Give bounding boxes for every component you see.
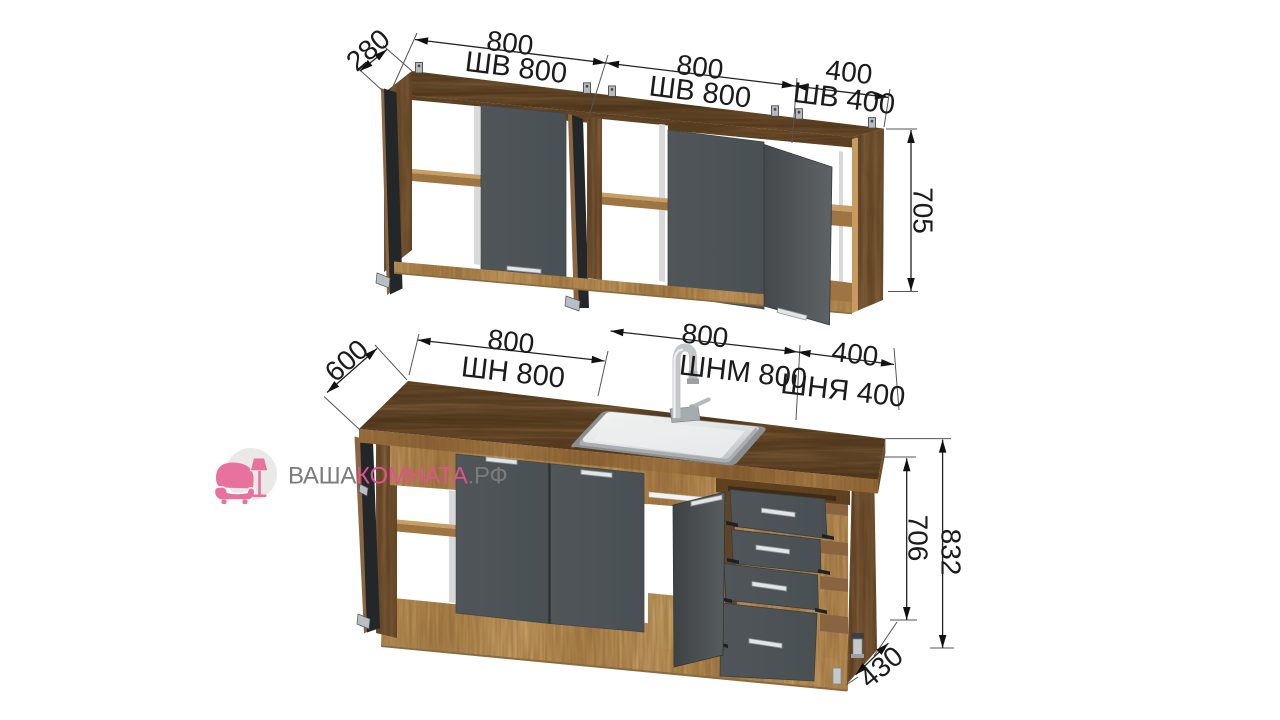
svg-text:400: 400: [830, 336, 880, 372]
svg-text:705: 705: [908, 187, 939, 234]
svg-text:706: 706: [903, 515, 934, 562]
svg-text:800: 800: [680, 317, 730, 353]
svg-text:ВАШАКОМНАТА.РФ: ВАШАКОМНАТА.РФ: [288, 463, 507, 490]
svg-text:832: 832: [936, 529, 967, 576]
